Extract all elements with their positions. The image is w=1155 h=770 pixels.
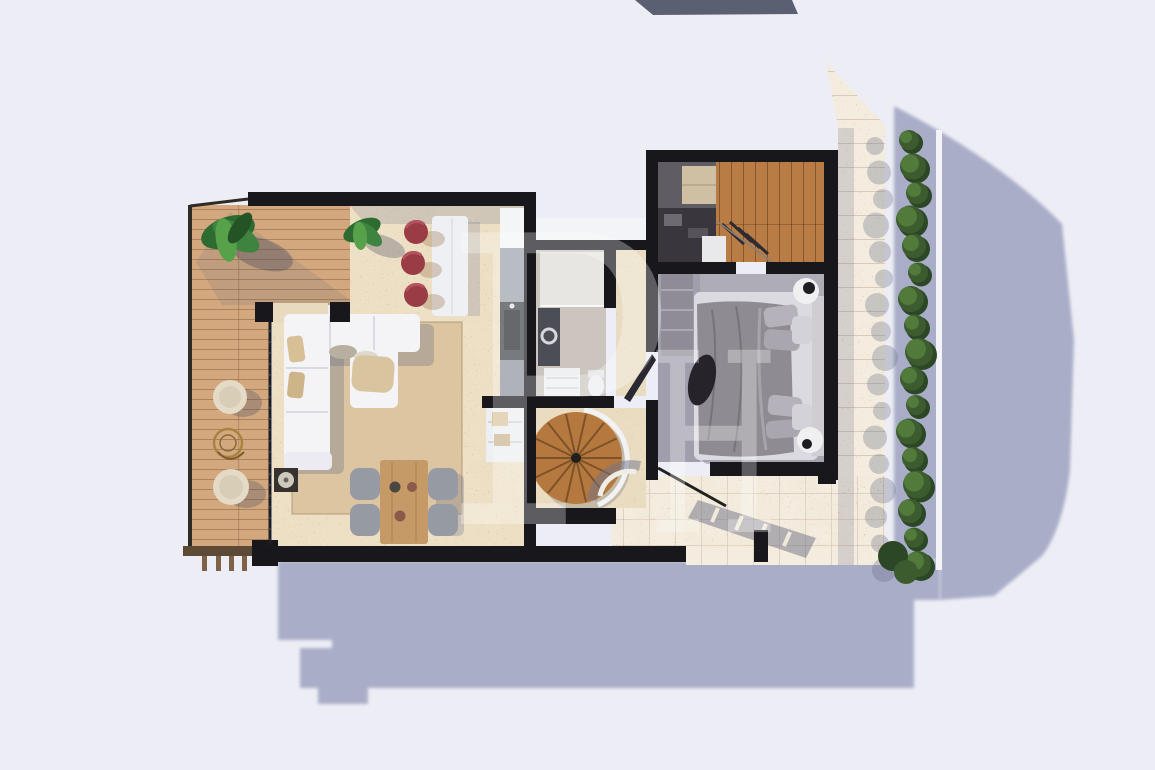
place-setting	[395, 511, 406, 522]
hedge-bush	[903, 235, 919, 251]
deck-edge	[183, 546, 258, 556]
roof-slab	[635, 0, 798, 15]
hedge-bush	[899, 287, 917, 305]
nightstand	[797, 427, 823, 453]
hedge-bush	[897, 207, 917, 227]
hedge-bush	[901, 155, 919, 173]
hedge-bush	[906, 339, 926, 359]
ottoman-pouf	[351, 355, 395, 394]
hedge-bush	[907, 183, 921, 197]
place-setting	[390, 482, 401, 493]
bed-pillow	[792, 404, 812, 430]
building-cast-shadow	[278, 561, 940, 704]
hedge-bush	[899, 500, 915, 516]
hedge-bush	[905, 529, 917, 541]
nightstand	[793, 278, 819, 304]
side-table	[274, 468, 298, 492]
dining-chair	[350, 504, 380, 536]
hedge-bush	[900, 131, 912, 143]
watermark-letter-2: H	[648, 300, 779, 591]
walk-in-closet	[702, 162, 824, 262]
hedge-bush	[904, 472, 924, 492]
hedge-bush	[901, 368, 917, 384]
serving-tray	[329, 345, 357, 359]
planter-edge	[936, 130, 942, 570]
bar-stool	[401, 251, 425, 275]
bar-stool	[404, 220, 428, 244]
dining-table	[380, 460, 428, 544]
place-setting	[407, 482, 417, 492]
closet-cabinet	[702, 236, 726, 262]
dining-chair	[350, 468, 380, 500]
hedge-bush	[909, 264, 921, 276]
floor-plan-render: P H	[0, 0, 1155, 770]
hedge-bush	[905, 316, 919, 330]
bed-pillow	[792, 316, 812, 344]
watermark-letter-1: P	[442, 153, 673, 618]
lumbar-pillow	[287, 371, 306, 399]
hedge-bush	[903, 448, 917, 462]
hedge-bush	[897, 420, 915, 438]
bar-stool	[404, 283, 428, 307]
hedge-bush	[907, 396, 919, 408]
